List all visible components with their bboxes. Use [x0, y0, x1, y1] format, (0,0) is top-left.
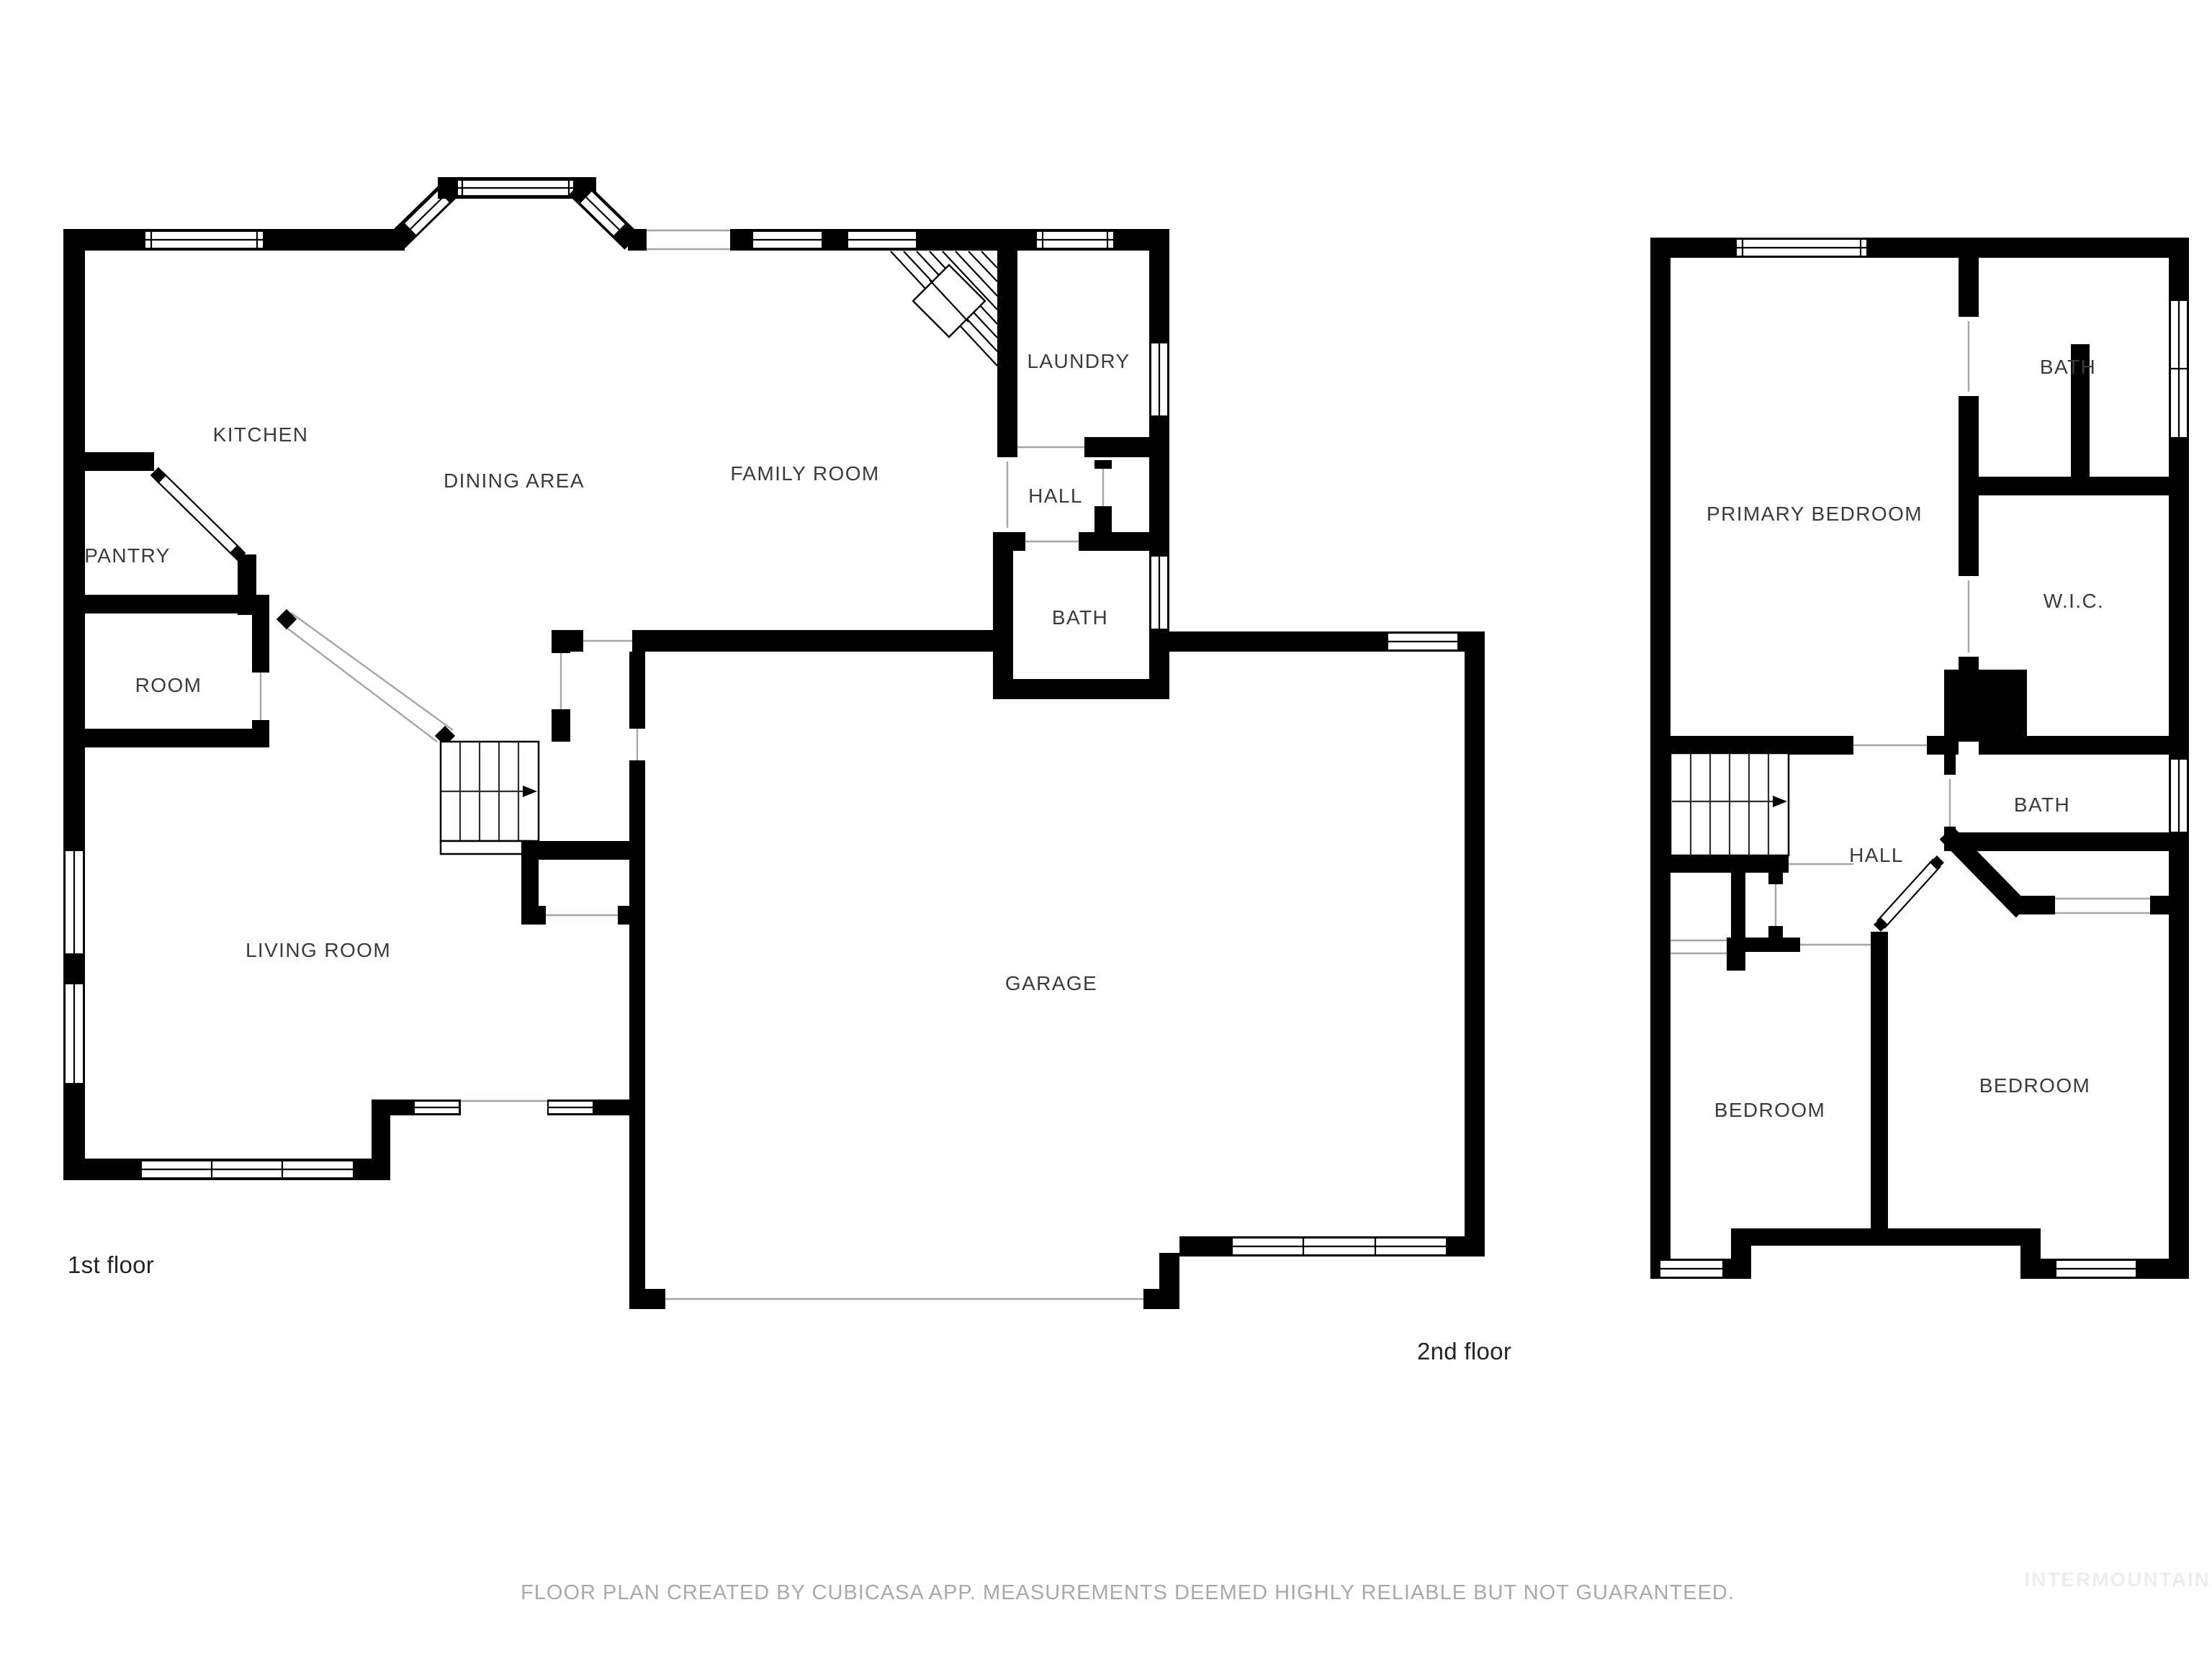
f2-mid-wall: [1650, 736, 1959, 755]
watermark-text: INTERMOUNTAIN: [2024, 1568, 2211, 1591]
f2-bedroom-divider: [1871, 932, 1888, 1228]
room-label-garage: GARAGE: [1005, 972, 1097, 995]
corner-stairs-hatch: [891, 251, 997, 366]
room-label-primary-bedroom: PRIMARY BEDROOM: [1707, 503, 1923, 526]
room-label-laundry: LAUNDRY: [1027, 350, 1130, 373]
wall-top-left: [63, 229, 405, 251]
room-label-family-room: FAMILY ROOM: [730, 462, 879, 485]
room-label-bedroom-right: BEDROOM: [1979, 1074, 2090, 1097]
room-label-room: ROOM: [135, 674, 202, 697]
floor-plan-page: KITCHEN DINING AREA FAMILY ROOM LAUNDRY …: [0, 0, 2212, 1659]
wall-living-bottom: [372, 1100, 645, 1115]
second-floor-plan: [1650, 238, 2189, 1279]
wall-opening-top: [628, 229, 730, 251]
room-label-living-room: LIVING ROOM: [246, 939, 391, 962]
room-label-hall-2: HALL: [1849, 844, 1904, 867]
f2-bottom-walls: [1650, 1228, 2189, 1279]
stairs-closet-walls: [521, 630, 645, 925]
living-room-bay: [63, 1100, 390, 1180]
staircase-first-floor: [441, 742, 539, 854]
garage-walls: [629, 631, 1485, 1309]
room-label-kitchen: KITCHEN: [213, 423, 309, 446]
caption-second-floor: 2nd floor: [1417, 1338, 1511, 1365]
laundry-hall-walls: [997, 251, 1169, 532]
wall-left-exterior: [63, 229, 85, 1180]
first-floor-plan: [63, 177, 1485, 1309]
pantry-room-walls: [63, 452, 269, 747]
room-label-hall-1: HALL: [1028, 485, 1083, 508]
diagonal-opening: [276, 609, 455, 746]
bay-window: [397, 177, 632, 242]
f2-hall-diagonals: [1874, 840, 2169, 932]
f2-closet-walls: [1731, 873, 1783, 940]
room-label-bath-1: BATH: [1052, 606, 1108, 629]
wall-right-exterior: [1149, 229, 1169, 699]
disclaimer-text: FLOOR PLAN CREATED BY CUBICASA APP. MEAS…: [521, 1581, 1735, 1605]
wall-family-garage: [570, 630, 1013, 652]
room-label-dining-area: DINING AREA: [444, 469, 585, 493]
room-label-bedroom-left: BEDROOM: [1714, 1099, 1825, 1122]
f2-divider-wall: [1959, 258, 1979, 736]
room-label-bath-mid: BATH: [2014, 793, 2070, 817]
wall-top-right: [730, 229, 1169, 251]
floor-plan-drawing: [0, 0, 2212, 1659]
room-label-wic: W.I.C.: [2044, 590, 2105, 613]
room-label-pantry: PANTRY: [84, 544, 170, 567]
room-label-bath-top: BATH: [2040, 356, 2096, 379]
staircase-second-floor: [1650, 753, 1853, 873]
caption-first-floor: 1st floor: [68, 1251, 154, 1279]
f2-bedroom-left-top-wall: [1671, 938, 1871, 971]
